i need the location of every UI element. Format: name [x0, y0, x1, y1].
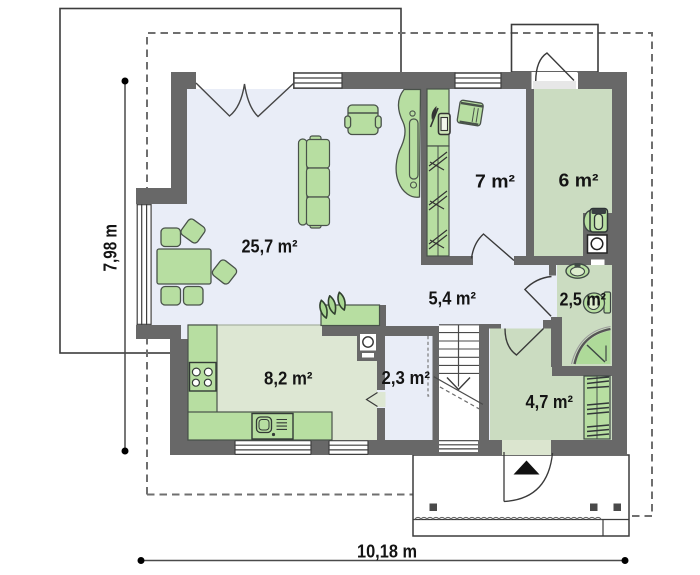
svg-text:7,98 m: 7,98 m	[101, 224, 121, 272]
svg-text:4,7 m²: 4,7 m²	[526, 392, 574, 412]
svg-text:2,5 m²: 2,5 m²	[560, 290, 607, 310]
svg-text:25,7 m²: 25,7 m²	[242, 236, 298, 256]
svg-text:5,4 m²: 5,4 m²	[429, 289, 477, 309]
svg-text:10,18 m: 10,18 m	[357, 542, 417, 562]
svg-text:2,3 m²: 2,3 m²	[382, 368, 431, 388]
svg-text:8,2 m²: 8,2 m²	[264, 368, 313, 388]
svg-text:7 m²: 7 m²	[475, 172, 515, 192]
svg-text:6 m²: 6 m²	[559, 171, 599, 191]
